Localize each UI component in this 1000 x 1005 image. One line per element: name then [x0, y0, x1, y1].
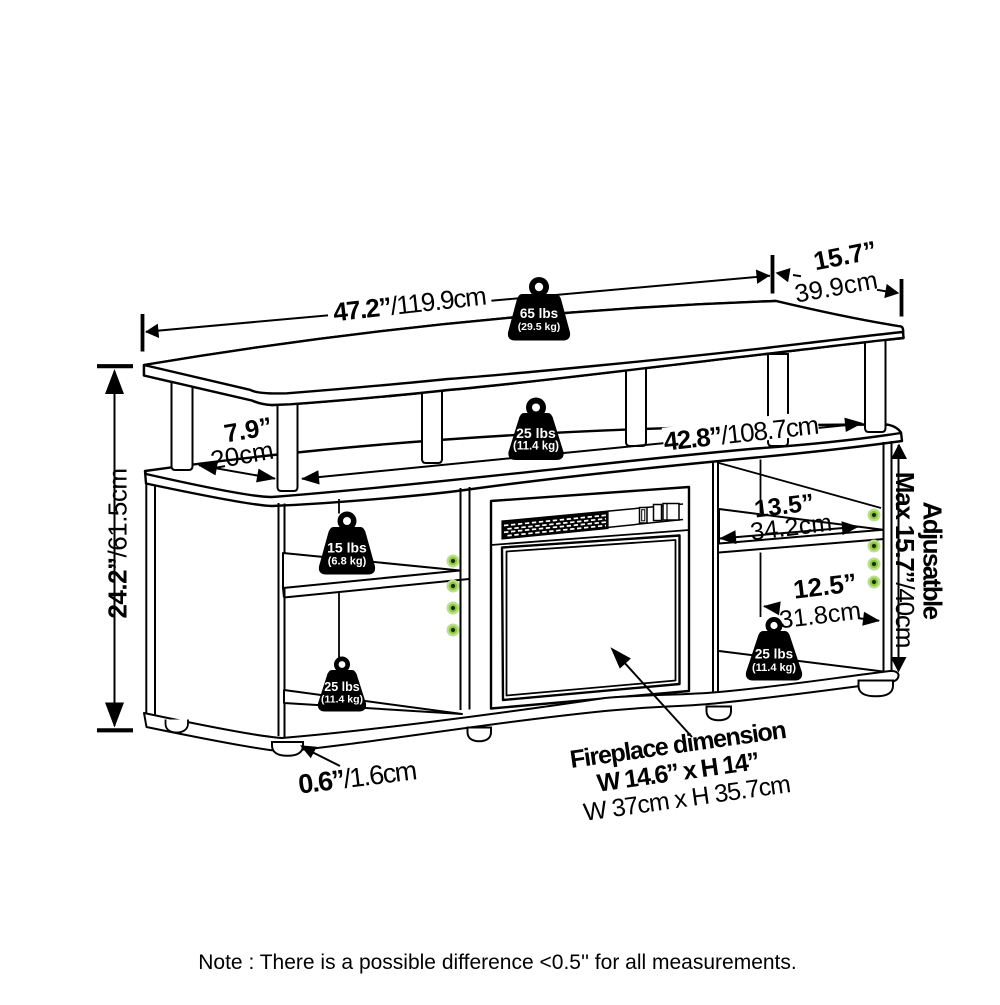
svg-text:(11.4 kg): (11.4 kg): [513, 441, 559, 453]
svg-text:(11.4 kg): (11.4 kg): [752, 662, 796, 674]
svg-text:25 lbs: 25 lbs: [516, 425, 556, 441]
svg-text:24.2”/61.5cm: 24.2”/61.5cm: [103, 468, 133, 618]
svg-text:(11.4 kg): (11.4 kg): [321, 694, 363, 706]
svg-text:15 lbs: 15 lbs: [327, 540, 367, 556]
svg-text:(29.5 kg): (29.5 kg): [518, 321, 561, 333]
svg-text:Max 15.7”/40cm: Max 15.7”/40cm: [890, 472, 920, 647]
svg-text:25 lbs: 25 lbs: [755, 647, 793, 662]
svg-text:25 lbs: 25 lbs: [324, 680, 359, 694]
svg-text:Adjusatble: Adjusatble: [918, 502, 948, 620]
svg-text:(6.8 kg): (6.8 kg): [328, 556, 367, 568]
svg-text:Note : There is a possible dif: Note : There is a possible difference <0…: [198, 951, 796, 974]
svg-text:65 lbs: 65 lbs: [520, 306, 558, 321]
